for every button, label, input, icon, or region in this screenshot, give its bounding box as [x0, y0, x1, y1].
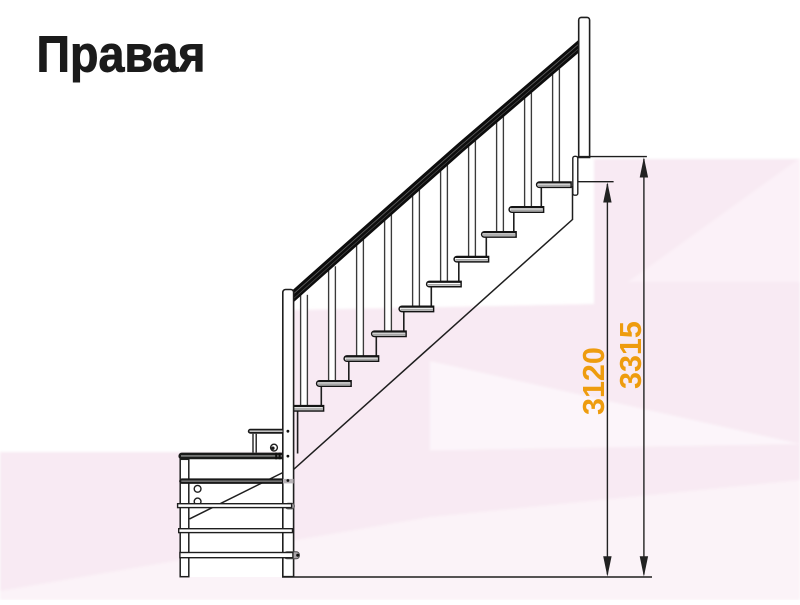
svg-text:3120: 3120 [577, 347, 611, 415]
svg-text:Правая: Правая [37, 26, 206, 83]
svg-text:3315: 3315 [614, 321, 648, 389]
